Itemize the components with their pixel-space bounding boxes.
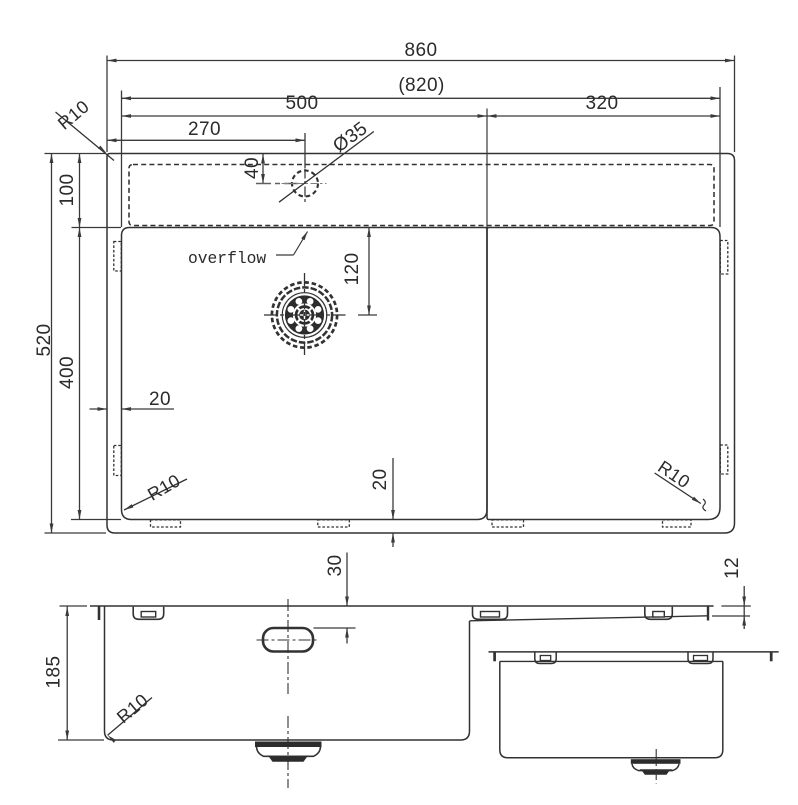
svg-text:500: 500 xyxy=(286,93,319,114)
svg-text:(820): (820) xyxy=(398,75,444,96)
svg-text:overflow: overflow xyxy=(188,249,266,268)
svg-text:12: 12 xyxy=(722,557,743,579)
svg-text:320: 320 xyxy=(586,93,619,114)
svg-text:185: 185 xyxy=(44,656,65,689)
svg-text:860: 860 xyxy=(405,40,438,61)
svg-text:40: 40 xyxy=(242,157,263,179)
svg-text:100: 100 xyxy=(57,174,78,207)
svg-text:270: 270 xyxy=(188,119,221,140)
svg-text:20: 20 xyxy=(149,389,171,410)
svg-text:400: 400 xyxy=(57,356,78,389)
svg-text:120: 120 xyxy=(342,253,363,286)
svg-text:30: 30 xyxy=(325,555,346,577)
svg-text:20: 20 xyxy=(370,469,391,491)
svg-text:520: 520 xyxy=(34,324,55,357)
